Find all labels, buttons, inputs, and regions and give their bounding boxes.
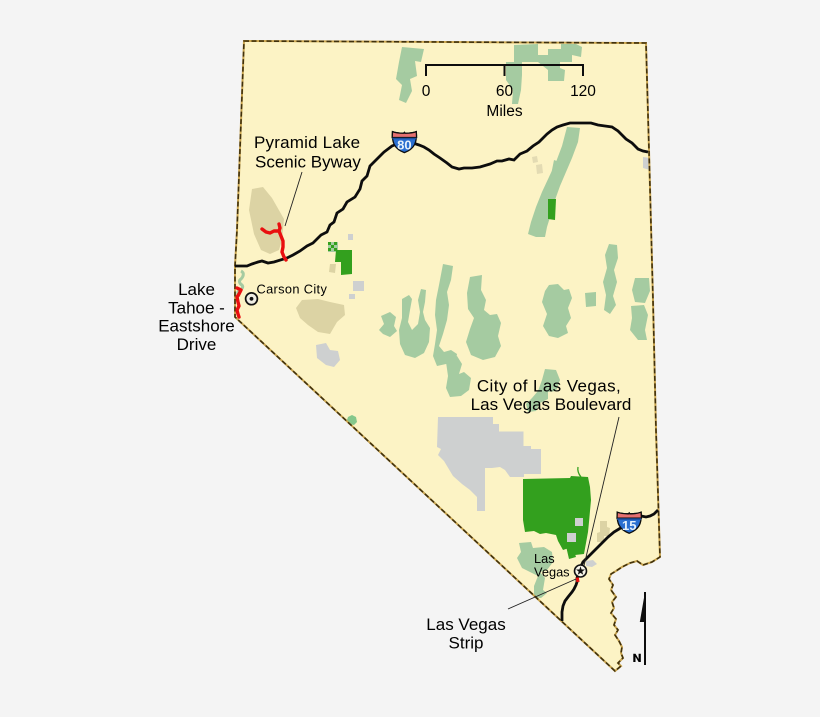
svg-text:Scenic Byway: Scenic Byway: [255, 153, 361, 172]
svg-text:15: 15: [622, 518, 636, 533]
svg-text:Vegas: Vegas: [534, 564, 570, 579]
svg-text:Tahoe -: Tahoe -: [168, 298, 225, 317]
svg-text:Pyramid Lake: Pyramid Lake: [254, 133, 360, 152]
svg-text:Lake: Lake: [178, 280, 215, 299]
svg-text:Las Vegas: Las Vegas: [426, 615, 505, 634]
svg-text:Eastshore: Eastshore: [158, 317, 235, 336]
svg-text:60: 60: [496, 83, 514, 100]
svg-text:Carson City: Carson City: [257, 281, 328, 296]
svg-text:0: 0: [422, 83, 431, 100]
svg-text:120: 120: [570, 83, 596, 100]
svg-text:80: 80: [397, 137, 411, 152]
svg-text:Drive: Drive: [177, 335, 217, 354]
svg-text:Strip: Strip: [449, 634, 484, 653]
svg-text:Miles: Miles: [486, 103, 522, 120]
svg-text:Las Vegas Boulevard: Las Vegas Boulevard: [471, 395, 632, 414]
svg-text:City of Las Vegas,: City of Las Vegas,: [477, 376, 621, 395]
